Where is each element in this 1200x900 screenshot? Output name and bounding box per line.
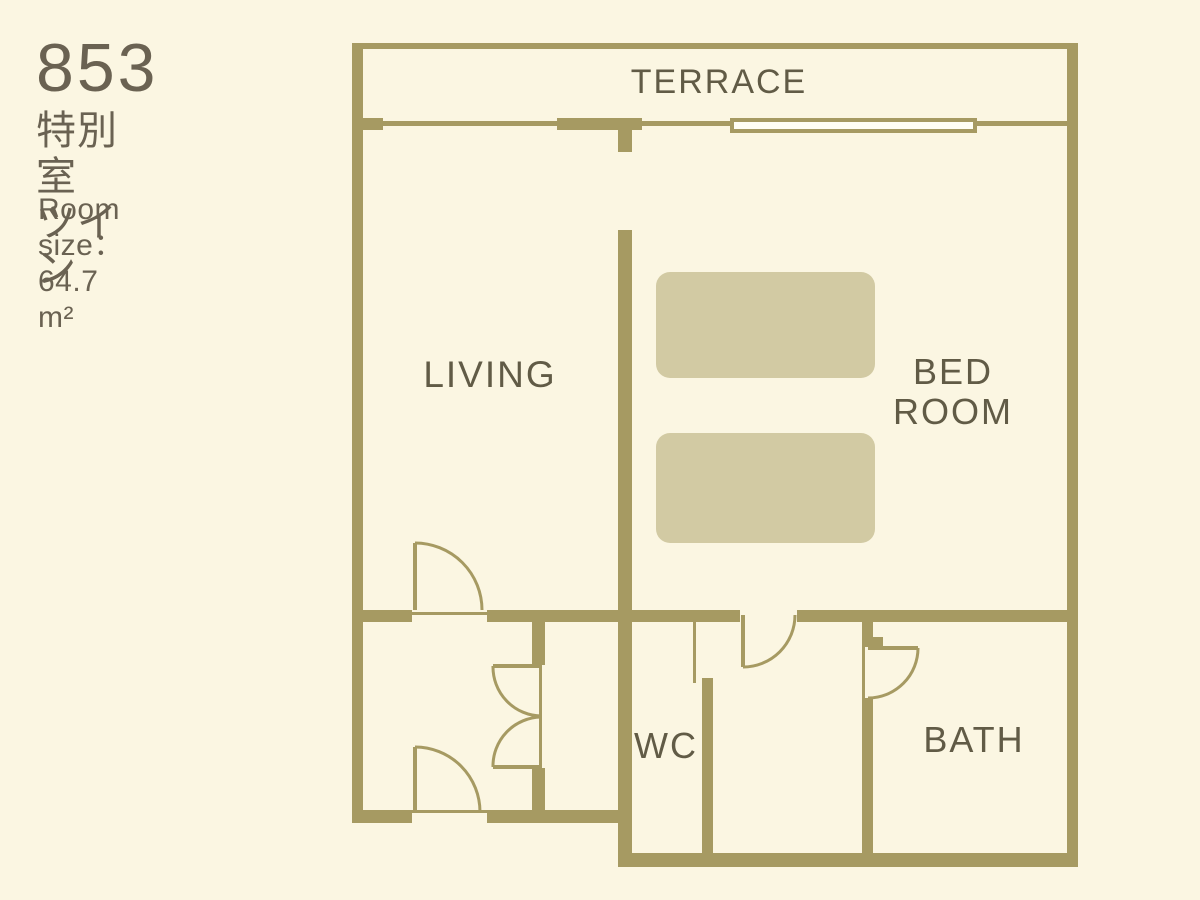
hall-bottom-wall-right [487,810,632,823]
closet-door-top-arc [493,666,541,716]
mid-wall-right [797,610,1067,622]
bed-2 [656,433,875,543]
terrace-boundary [363,118,1067,152]
bath-label: BATH [874,719,1074,761]
living-door [415,543,482,610]
terrace-thin-rail-1 [383,121,557,126]
entrance-door-arc [415,747,480,812]
bath-door-jamb [862,637,883,647]
mid-wall-left [352,610,412,622]
bath-section-bottom-wall [618,853,1078,867]
hall-bottom-wall-left [352,810,412,823]
mid-wall-center [487,610,740,622]
bath-door-arc [868,648,918,698]
opening-lines [412,614,864,812]
bed-1 [656,272,875,378]
bedroom-label-line2: ROOM [853,392,1053,432]
left-outer-wall [352,43,363,823]
bath-door [868,648,918,698]
washroom-door-arc [743,615,795,667]
closet-door-bottom-arc [493,717,541,767]
room-size: Room size：64.7 m² [38,192,124,336]
wc-right-wall [702,678,713,858]
terrace-thin-rail-2 [642,121,730,126]
floor-plan-page: TERRACE LIVING BED ROOM WC BATH 853 特別室 … [0,0,1200,900]
room-number: 853 [36,34,158,102]
floor-plan-drawing [0,0,1200,900]
terrace-window-glass [734,122,973,129]
top-outer-wall [352,43,1078,49]
terrace-label: TERRACE [619,63,819,102]
entrance-door [415,747,480,812]
living-bedroom-divider-wall [618,230,632,610]
doors [415,543,918,812]
washroom-door [743,615,795,667]
bath-wall-lower [862,698,873,858]
living-door-arc [415,543,482,610]
wc-label: WC [616,725,716,767]
closet-wall-upper [532,622,545,665]
closet-wall-lower [532,768,545,812]
terrace-wall-segment [557,118,642,130]
bedroom-label-line1: BED [853,352,1053,392]
terrace-wall-block-left [363,118,383,130]
closet-doors [493,666,541,767]
bedroom-label: BED ROOM [853,352,1053,432]
beds [656,272,875,543]
living-label: LIVING [390,354,590,396]
divider-wall-stub [618,130,632,152]
terrace-thin-rail-3 [977,121,1067,126]
